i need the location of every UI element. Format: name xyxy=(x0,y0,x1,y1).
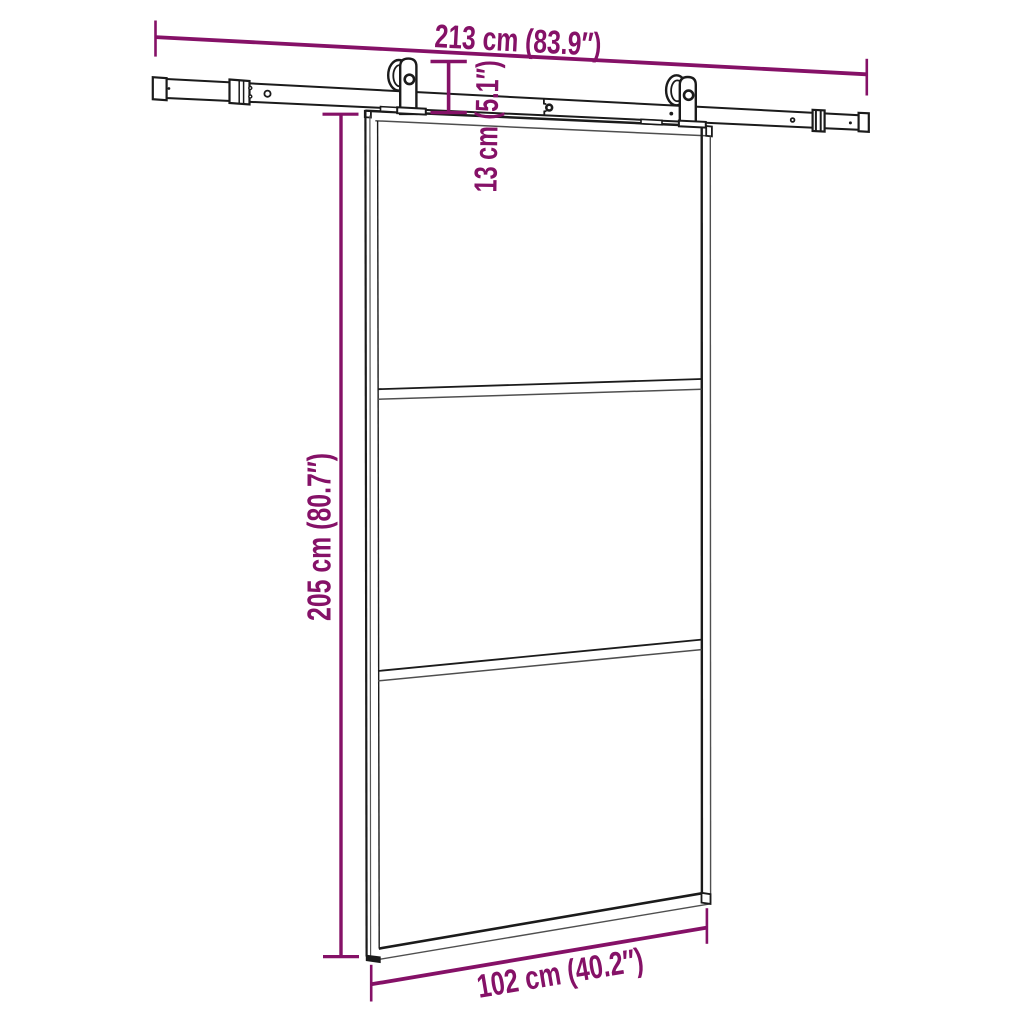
svg-text:13 cm (5.1″): 13 cm (5.1″) xyxy=(467,60,505,193)
svg-text:205 cm (80.7″): 205 cm (80.7″) xyxy=(301,453,338,621)
